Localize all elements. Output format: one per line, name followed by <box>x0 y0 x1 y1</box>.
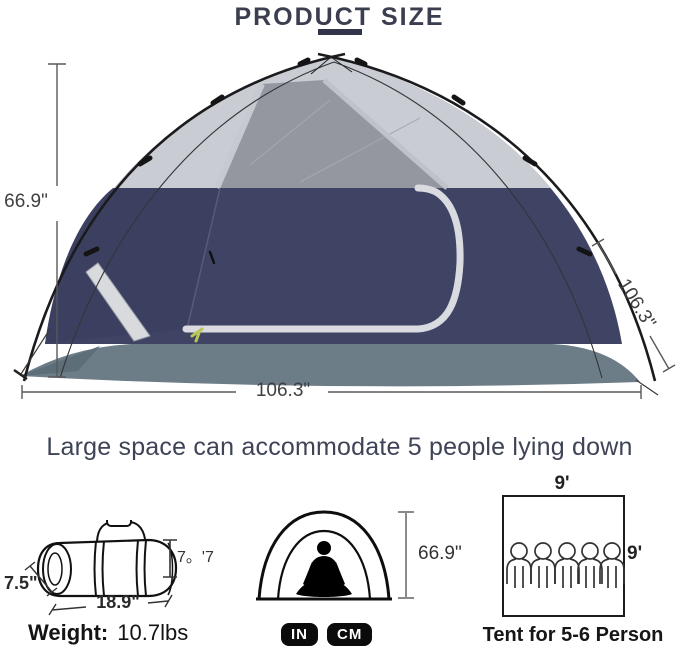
unit-badges: IN CM <box>281 623 372 646</box>
weight-label: Weight: <box>28 620 108 646</box>
floor-plan-icon <box>495 490 635 622</box>
plan-person-icons <box>507 543 624 588</box>
bag-diameter-label: 7.5" <box>4 573 50 594</box>
tent-width-label: 106.3" <box>236 380 330 402</box>
tent-illustration <box>0 0 679 420</box>
bag-length-label: 18.9" <box>86 592 150 613</box>
meditating-person-icon <box>296 541 352 597</box>
inner-height-dimension-line <box>398 512 414 598</box>
weight-row: Weight: 10.7lbs <box>28 620 188 646</box>
tent-height-label: 66.9" <box>0 191 52 213</box>
tent-front-icon <box>250 495 420 605</box>
unit-badge-cm: CM <box>327 623 372 646</box>
tent-floor <box>20 344 640 386</box>
unit-badge-in: IN <box>281 623 318 646</box>
plan-caption: Tent for 5-6 Person <box>468 624 678 647</box>
bag-height-label: 7。'7 <box>177 543 214 567</box>
inner-height-label: 66.9" <box>418 543 462 565</box>
plan-width-label: 9' <box>546 473 578 495</box>
weight-value: 10.7lbs <box>117 620 188 646</box>
plan-depth-label: 9' <box>627 543 642 565</box>
capacity-caption: Large space can accommodate 5 people lyi… <box>0 433 679 462</box>
product-size-infographic: PRODUCT SIZE <box>0 0 679 655</box>
width-dimension-line <box>22 385 641 399</box>
